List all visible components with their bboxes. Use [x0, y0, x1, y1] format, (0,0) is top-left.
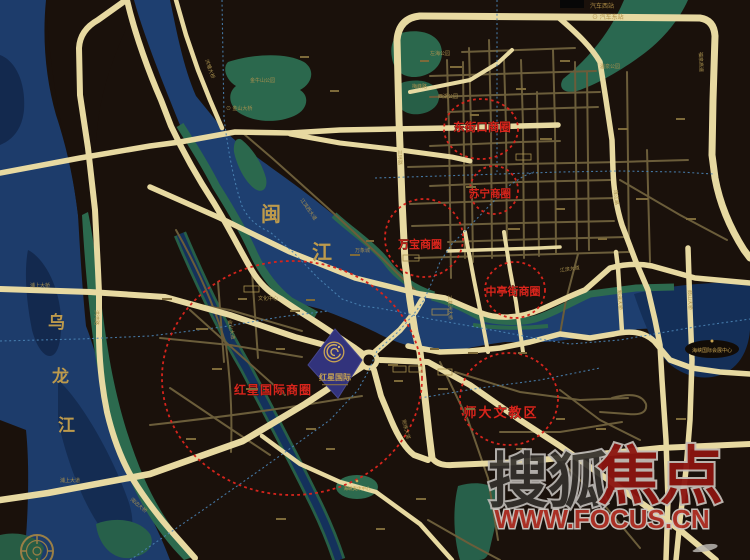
svg-text:⊙ 汽车东站: ⊙ 汽车东站: [592, 13, 624, 21]
svg-text:三环路: 三环路: [396, 150, 404, 165]
svg-text:海峡奥体中心: 海峡奥体中心: [344, 485, 371, 492]
svg-text:福泉高速: 福泉高速: [697, 52, 705, 72]
svg-text:魁浦大桥: 魁浦大桥: [616, 290, 624, 310]
svg-text:江: 江: [58, 416, 75, 435]
svg-text:三县洲大桥: 三县洲大桥: [446, 295, 454, 320]
svg-text:乌: 乌: [48, 312, 65, 332]
svg-text:苏宁商圈: 苏宁商圈: [469, 187, 511, 200]
svg-text:汽车西站: 汽车西站: [590, 2, 614, 10]
svg-text:浦上大道: 浦上大道: [60, 477, 80, 484]
svg-text:万宝商圈: 万宝商圈: [397, 237, 442, 251]
svg-text:温泉公园: 温泉公园: [600, 63, 620, 70]
svg-text:龙: 龙: [51, 366, 69, 386]
svg-text:焦点: 焦点: [597, 442, 723, 512]
svg-text:文化中心: 文化中心: [258, 295, 278, 302]
svg-text:金牛山公园: 金牛山公园: [250, 77, 275, 84]
svg-text:中亭街商圈: 中亭街商圈: [486, 284, 541, 298]
svg-text:海峡国际会展中心: 海峡国际会展中心: [692, 347, 732, 354]
svg-text:浦上大桥: 浦上大桥: [30, 282, 50, 289]
svg-text:西湖公园: 西湖公园: [438, 93, 458, 100]
svg-text:师大文教区: 师大文教区: [463, 405, 538, 420]
svg-text:左海公园: 左海公园: [430, 50, 450, 57]
svg-text:东街口商圈: 东街口商圈: [453, 120, 511, 134]
svg-text:⊙ 金山大桥: ⊙ 金山大桥: [226, 105, 252, 112]
svg-text:万象城: 万象城: [355, 247, 370, 254]
svg-text:鼓山大桥: 鼓山大桥: [686, 290, 694, 310]
svg-text:闽: 闽: [261, 203, 281, 226]
svg-text:梅峰路: 梅峰路: [412, 83, 427, 90]
svg-text:江: 江: [312, 241, 332, 264]
svg-text:连江路: 连江路: [612, 190, 620, 206]
svg-text:红星国际商圈: 红星国际商圈: [234, 382, 312, 397]
svg-text:WWW.FOCUS.CN: WWW.FOCUS.CN: [494, 504, 709, 534]
svg-text:洪湾路: 洪湾路: [93, 310, 100, 325]
svg-text:红星国际: 红星国际: [319, 372, 351, 382]
